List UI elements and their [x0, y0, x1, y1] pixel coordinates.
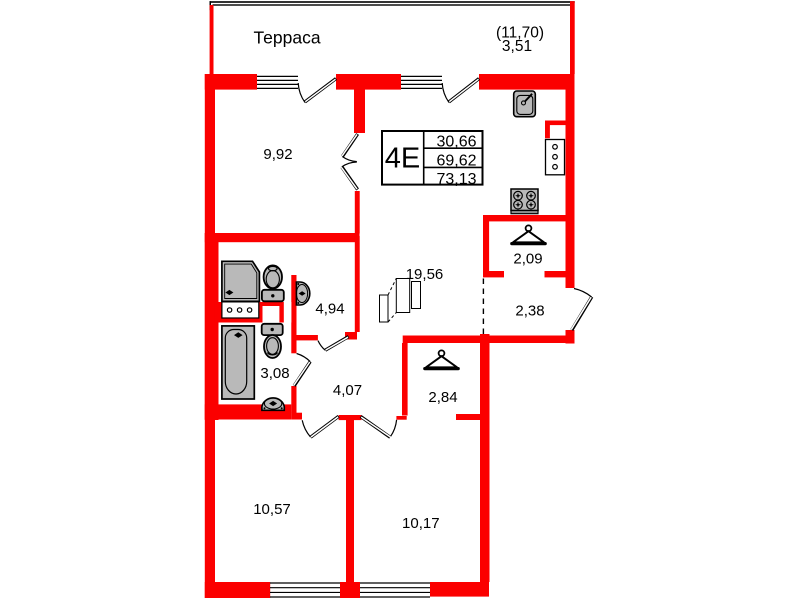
svg-text:2,09: 2,09	[513, 250, 542, 267]
svg-text:4,07: 4,07	[333, 382, 362, 399]
svg-text:69,62: 69,62	[436, 152, 476, 169]
svg-text:2,84: 2,84	[428, 389, 457, 406]
svg-text:30,66: 30,66	[436, 134, 476, 151]
svg-text:9,92: 9,92	[263, 146, 292, 163]
svg-text:19,56: 19,56	[406, 266, 444, 283]
svg-text:10,17: 10,17	[402, 515, 440, 532]
svg-text:4,94: 4,94	[315, 300, 344, 317]
svg-text:3,51: 3,51	[502, 38, 532, 55]
svg-text:2,38: 2,38	[515, 302, 544, 319]
svg-text:10,57: 10,57	[253, 501, 291, 518]
svg-text:73,13: 73,13	[436, 171, 476, 188]
svg-text:3,08: 3,08	[260, 365, 289, 382]
svg-text:Терраса: Терраса	[253, 28, 320, 48]
svg-text:4Е: 4Е	[385, 142, 420, 174]
